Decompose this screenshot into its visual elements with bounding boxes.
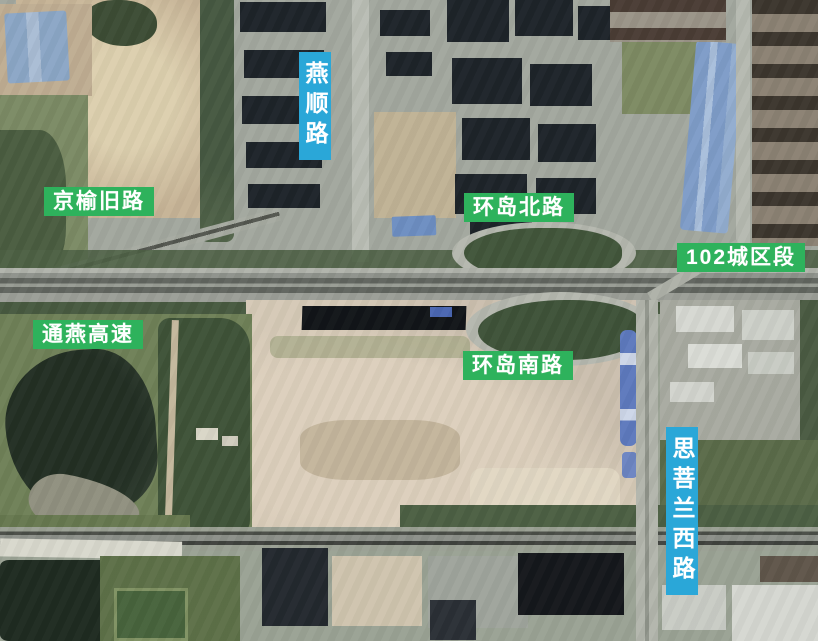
apartment-block [240,2,326,32]
warehouse-roof [688,344,742,368]
tree-strip-east-edge [800,300,818,442]
long-dark-building-blue-end [430,307,452,317]
white-building-southeast [732,585,818,641]
apartment-block [447,0,509,42]
warehouse-roof [748,352,794,374]
pond-south [0,560,112,641]
warehouse-roof [742,310,794,340]
tree-line-vertical [200,0,234,242]
apartment-block [538,124,596,162]
green-field-south [114,588,188,641]
apartment-block [530,64,592,106]
sipulan-roadway [636,300,658,641]
apartment-block [452,58,522,104]
apartment-block [515,0,573,36]
brown-patch-southeast [760,556,818,582]
dirt-patch [300,420,460,480]
north-south-road-east [736,0,750,250]
apartment-block [386,52,432,76]
apartment-block [380,10,430,36]
road-label-tongyan-expressway: 通燕高速 [33,320,143,349]
yanshun-roadway [352,0,369,262]
apartment-rows-east [752,0,818,246]
scrub-patch [270,336,470,358]
dark-building-south [262,548,328,626]
road-label-102-urban-section: 102城区段 [677,243,805,272]
road-label-jingyu-old-road: 京榆旧路 [44,187,154,216]
road-label-yanshun-road: 燕顺路 [299,52,331,160]
warehouse-roof [670,382,714,402]
apartment-block [248,184,320,208]
dark-roof-south [430,600,476,640]
tan-building-south [332,556,422,626]
blue-bus-structure-small [622,452,637,478]
apartment-block [462,118,530,160]
blue-roof-warehouse [4,10,70,83]
warehouse-roof [676,306,734,332]
apartment-rows-reddish [610,0,726,42]
blue-roof-building-small [392,215,437,237]
road-label-sipulan-west-road: 思菩兰西路 [666,427,698,595]
dark-shadow-building [518,553,624,615]
small-building [222,436,238,446]
road-label-huandao-north-road: 环岛北路 [464,193,574,222]
small-building [196,428,218,440]
satellite-map: 燕顺路 京榆旧路 环岛北路 102城区段 通燕高速 环岛南路 思菩兰西路 [0,0,818,641]
tree-strip-along-rail-east [400,505,818,529]
blue-bus-structure [620,330,637,446]
vacant-lot [374,112,456,218]
road-label-huandao-south-road: 环岛南路 [463,351,573,380]
